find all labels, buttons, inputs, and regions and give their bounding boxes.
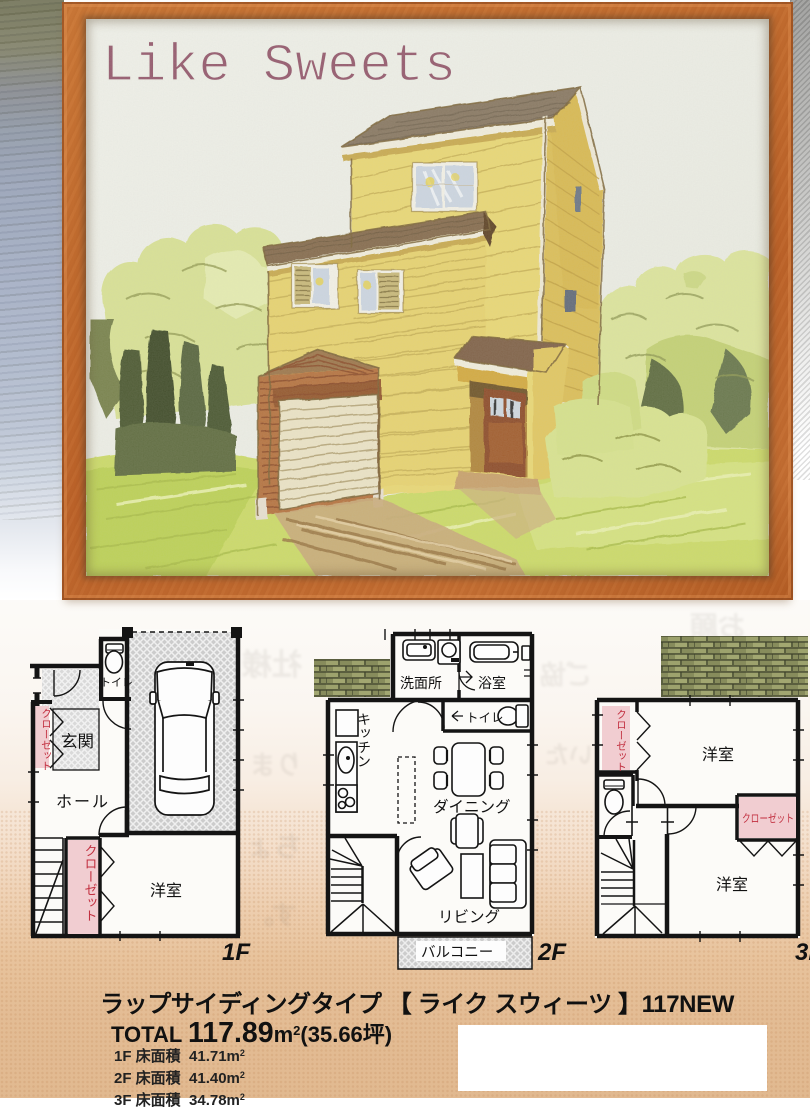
svg-text:3F: 3F <box>795 939 810 966</box>
svg-text:洋室: 洋室 <box>716 876 748 894</box>
svg-text:バルコニー: バルコニー <box>421 945 493 961</box>
svg-text:クローゼット: クローゼット <box>40 708 52 771</box>
svg-text:浴室: 浴室 <box>478 675 506 691</box>
svg-text:洋室: 洋室 <box>150 882 182 900</box>
svg-text:クローゼット: クローゼット <box>83 844 98 922</box>
svg-text:クローゼット: クローゼット <box>742 812 794 825</box>
svg-text:2F: 2F <box>537 939 567 966</box>
svg-text:洋室: 洋室 <box>702 746 734 764</box>
svg-text:1F: 1F <box>222 939 251 966</box>
svg-text:トイレ: トイレ <box>466 711 504 725</box>
svg-text:玄関: 玄関 <box>61 732 94 751</box>
svg-text:トイレ: トイレ <box>100 677 133 689</box>
svg-text:リビング: リビング <box>438 908 500 926</box>
svg-text:ホール: ホール <box>56 794 110 811</box>
svg-text:クローゼット: クローゼット <box>615 709 627 772</box>
svg-text:洗面所: 洗面所 <box>400 675 442 691</box>
